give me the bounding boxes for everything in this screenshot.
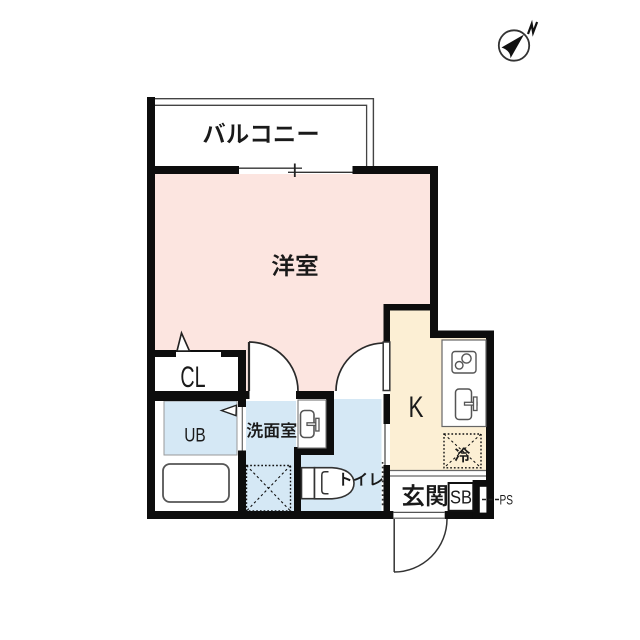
svg-text:UB: UB xyxy=(184,426,206,447)
svg-text:SB: SB xyxy=(450,488,472,508)
svg-text:PS: PS xyxy=(500,492,514,507)
svg-text:K: K xyxy=(409,391,424,424)
svg-text:CL: CL xyxy=(180,361,205,394)
